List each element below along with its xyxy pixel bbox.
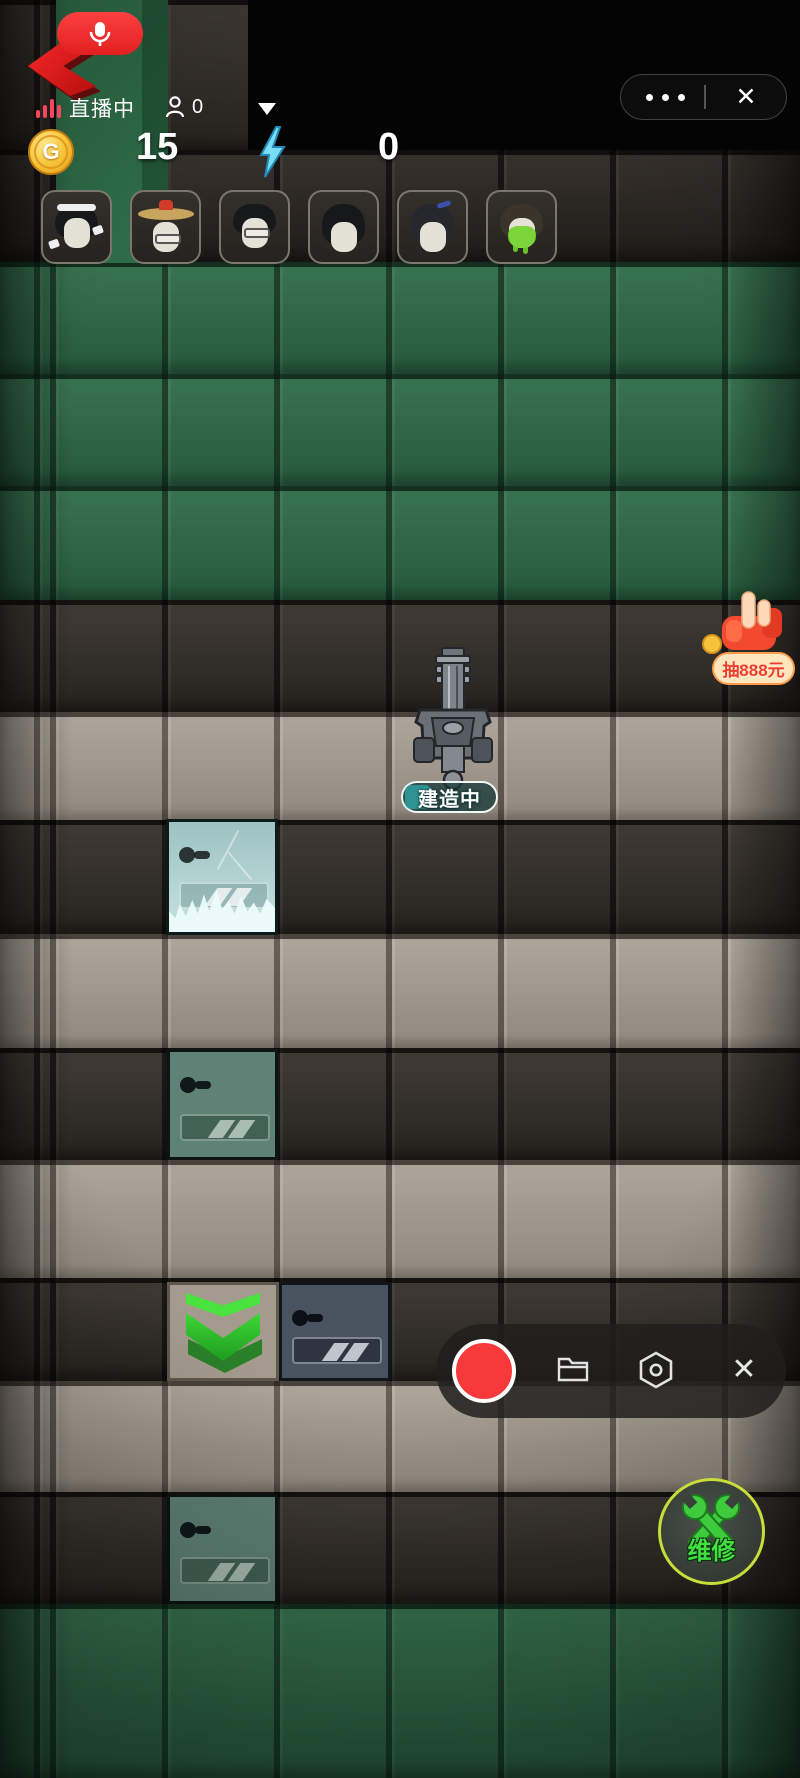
frozen-turret-slot-tile[interactable] xyxy=(166,819,278,935)
game-screen: 建造中 直播中 0 ✕ G 15 xyxy=(0,0,800,1778)
avatar-face xyxy=(420,222,446,252)
settings-icon[interactable] xyxy=(638,1350,674,1390)
hair-bows xyxy=(48,239,60,250)
board-row-dark-2 xyxy=(0,600,800,712)
live-status: 直播中 xyxy=(36,94,135,122)
lucky-draw-pill: 抽888元 xyxy=(712,652,795,685)
close-icon[interactable]: ✕ xyxy=(706,75,786,119)
board-row-grass-bottom xyxy=(0,1604,800,1778)
screen-recorder-toolbar: ✕ xyxy=(436,1324,786,1418)
teal-turret-slot-tile-2[interactable] xyxy=(167,1494,278,1604)
dropdown-icon[interactable] xyxy=(258,103,276,115)
turret-icon xyxy=(177,844,215,866)
build-status-label: 建造中 xyxy=(401,781,498,813)
avatar-girl-headband[interactable] xyxy=(41,190,112,264)
slate-turret-slot-tile[interactable] xyxy=(279,1282,391,1381)
teal-turret-slot-tile[interactable] xyxy=(167,1049,278,1160)
board-row-tan-3 xyxy=(0,1160,800,1278)
viewer-count: 0 xyxy=(192,96,203,119)
board-row-grass-3 xyxy=(0,486,800,600)
viewer-icon xyxy=(164,94,186,120)
board-row-grass-1 xyxy=(0,262,800,374)
coin-icon: G xyxy=(28,129,74,175)
board-row-tan-2 xyxy=(0,934,800,1048)
avatar-blue-hairpin[interactable] xyxy=(397,190,468,264)
turret-slot-panel xyxy=(180,1557,270,1584)
more-icon[interactable] xyxy=(646,94,685,101)
glasses xyxy=(244,228,270,238)
turret-slot-panel xyxy=(180,1114,270,1141)
lucky-draw-label: 抽888元 xyxy=(722,656,784,681)
glasses xyxy=(155,234,181,244)
turret-slot-panel xyxy=(292,1337,382,1364)
folder-icon[interactable] xyxy=(556,1353,590,1383)
ice-crack xyxy=(228,852,253,881)
turret-icon xyxy=(178,1519,216,1541)
pointing-hand-icon xyxy=(698,590,790,656)
viewer-counter: 0 xyxy=(164,94,203,120)
avatar-face xyxy=(64,218,90,248)
repair-label: 维修 xyxy=(661,1531,762,1566)
avatar-face xyxy=(331,222,357,252)
board-row-grass-2 xyxy=(0,374,800,486)
live-status-label: 直播中 xyxy=(69,93,135,123)
turret-icon xyxy=(178,1074,216,1096)
repair-button[interactable]: 维修 xyxy=(658,1478,765,1585)
turret-under-construction[interactable] xyxy=(406,646,500,796)
hat-top xyxy=(159,200,173,210)
miniprogram-capsule: ✕ xyxy=(620,74,787,120)
coin-value: 15 xyxy=(136,126,178,169)
turret-icon xyxy=(290,1307,328,1329)
signal-bars-icon xyxy=(36,98,61,118)
lightning-icon xyxy=(256,126,288,178)
upgrade-chevron-tile[interactable] xyxy=(167,1282,279,1381)
board-row-tan-1 xyxy=(0,712,800,820)
record-icon[interactable] xyxy=(452,1339,516,1403)
slime-splat xyxy=(508,226,536,248)
microphone-icon xyxy=(85,19,115,49)
avatar-glasses-kid[interactable] xyxy=(219,190,290,264)
ice-crack xyxy=(217,830,239,870)
energy-value: 0 xyxy=(378,126,399,169)
avatar-slimed-face[interactable] xyxy=(486,190,557,264)
board-row-dark-4 xyxy=(0,1048,800,1160)
board-row-dark-3 xyxy=(0,820,800,934)
avatar-elder-straw-hat[interactable] xyxy=(130,190,201,264)
headband xyxy=(57,204,96,211)
lucky-draw-badge[interactable]: 抽888元 xyxy=(698,590,796,688)
recorder-close-icon[interactable]: ✕ xyxy=(724,1350,764,1390)
upgrade-chevron-icon xyxy=(186,1293,260,1317)
mic-button[interactable] xyxy=(57,12,143,55)
coin-letter: G xyxy=(42,139,59,165)
avatar-black-bob[interactable] xyxy=(308,190,379,264)
